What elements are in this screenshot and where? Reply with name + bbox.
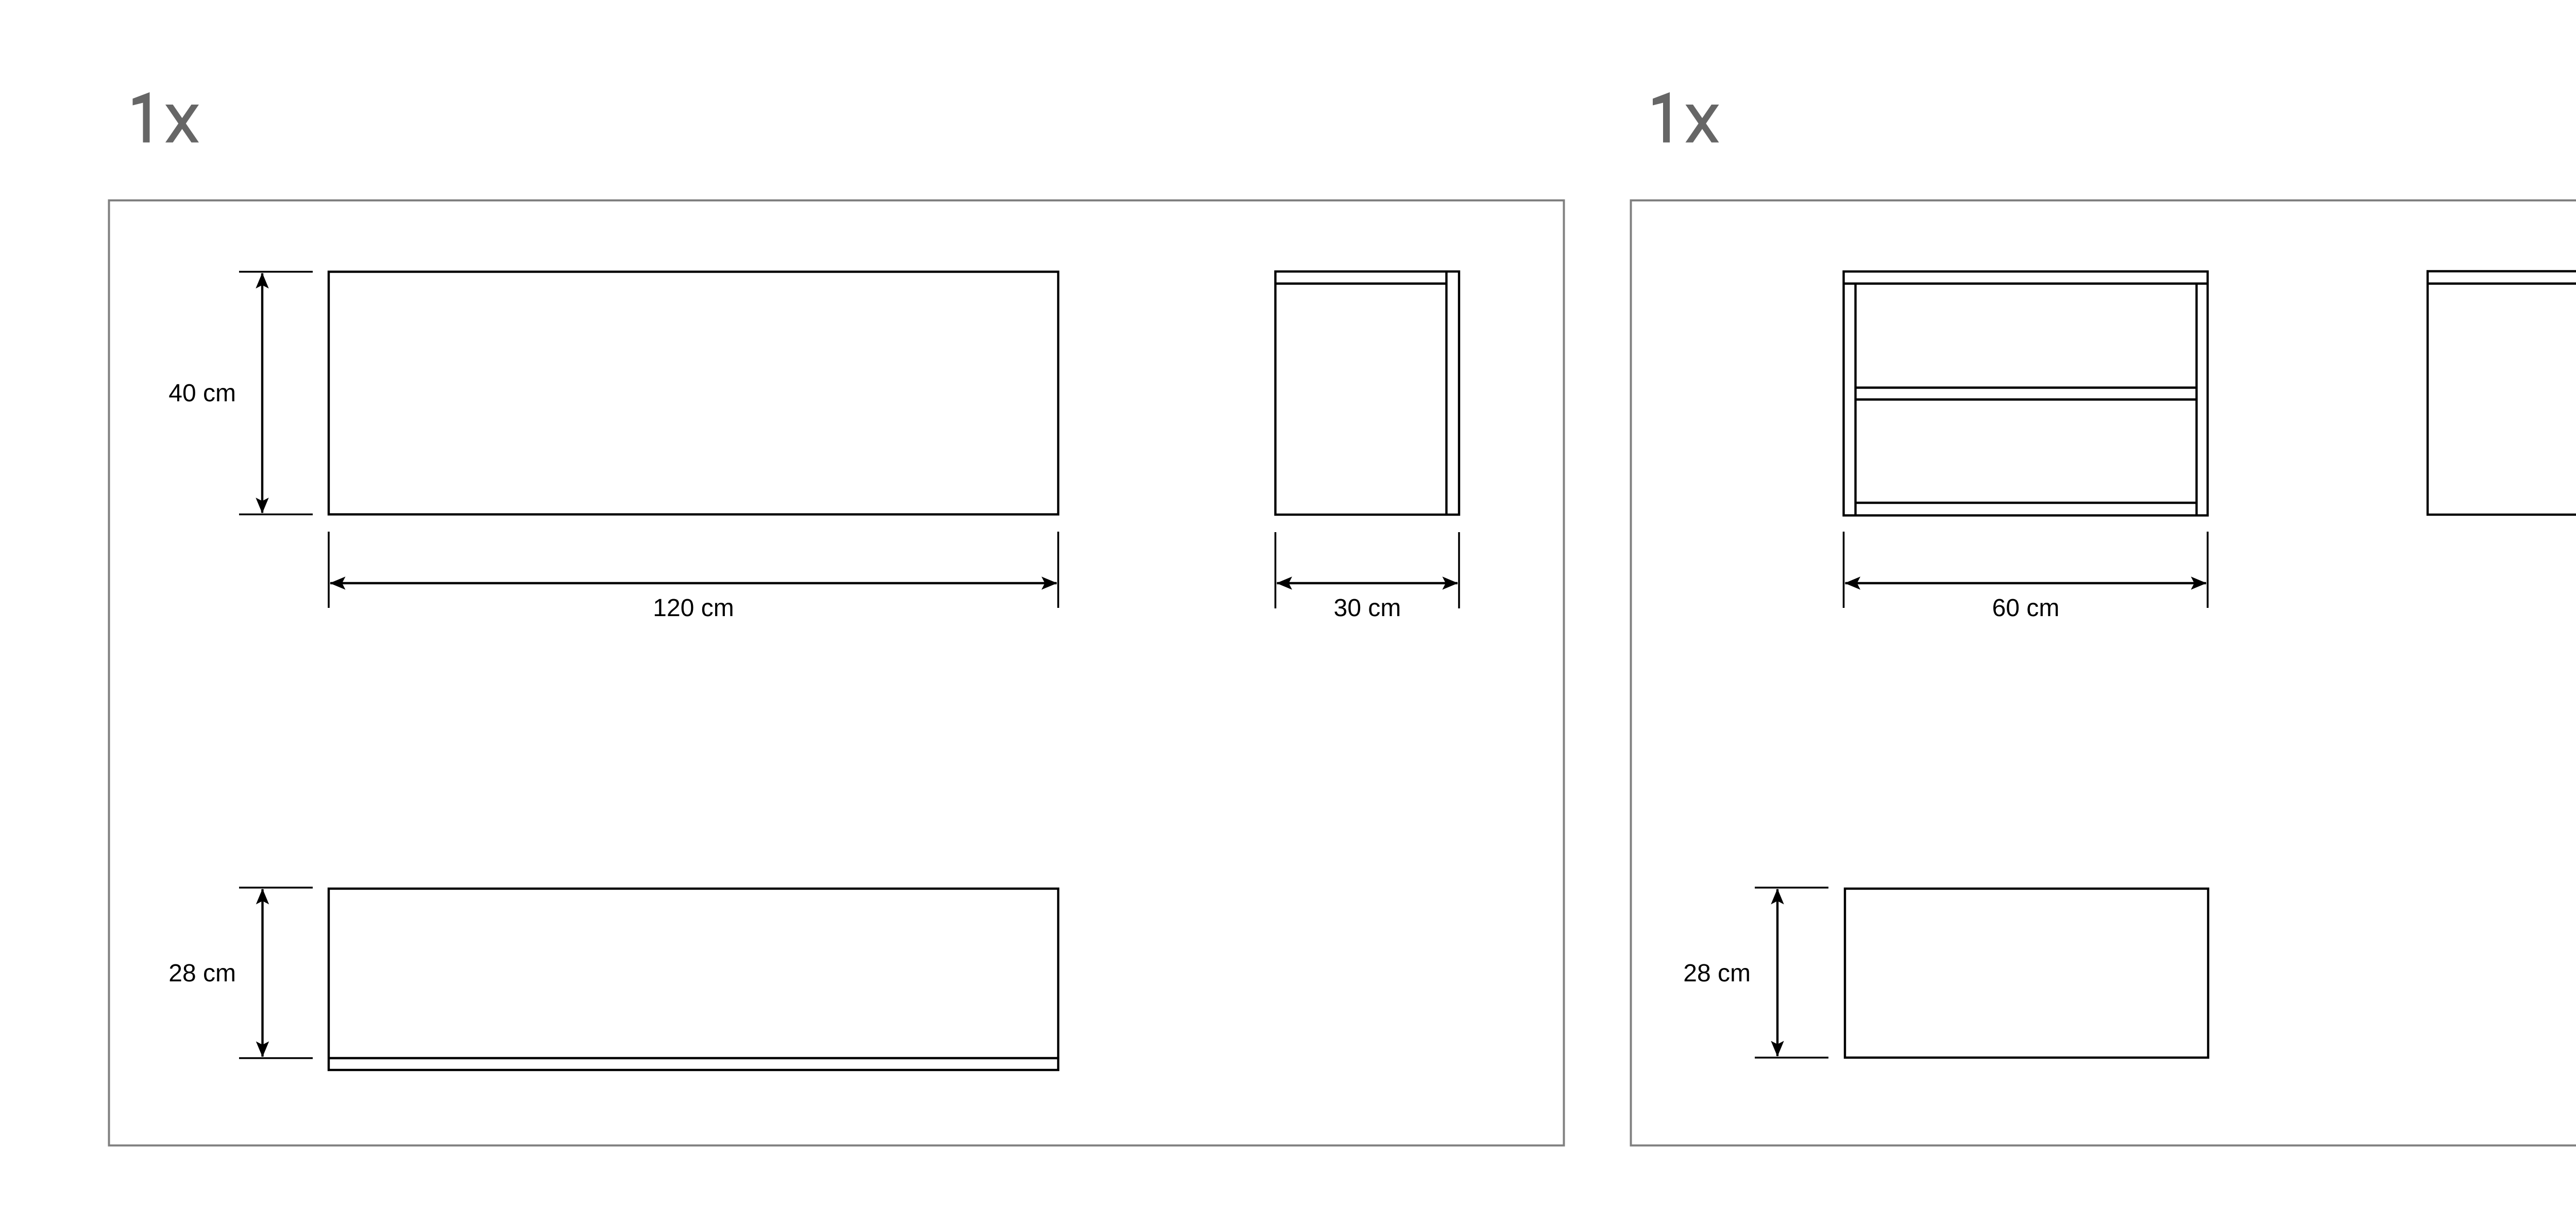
svg-text:60 cm: 60 cm	[1992, 594, 2060, 622]
svg-text:28 cm: 28 cm	[168, 960, 236, 987]
svg-text:40 cm: 40 cm	[168, 380, 236, 407]
svg-text:30 cm: 30 cm	[1334, 594, 1401, 622]
svg-text:120 cm: 120 cm	[653, 594, 734, 622]
svg-text:28 cm: 28 cm	[1683, 960, 1751, 987]
